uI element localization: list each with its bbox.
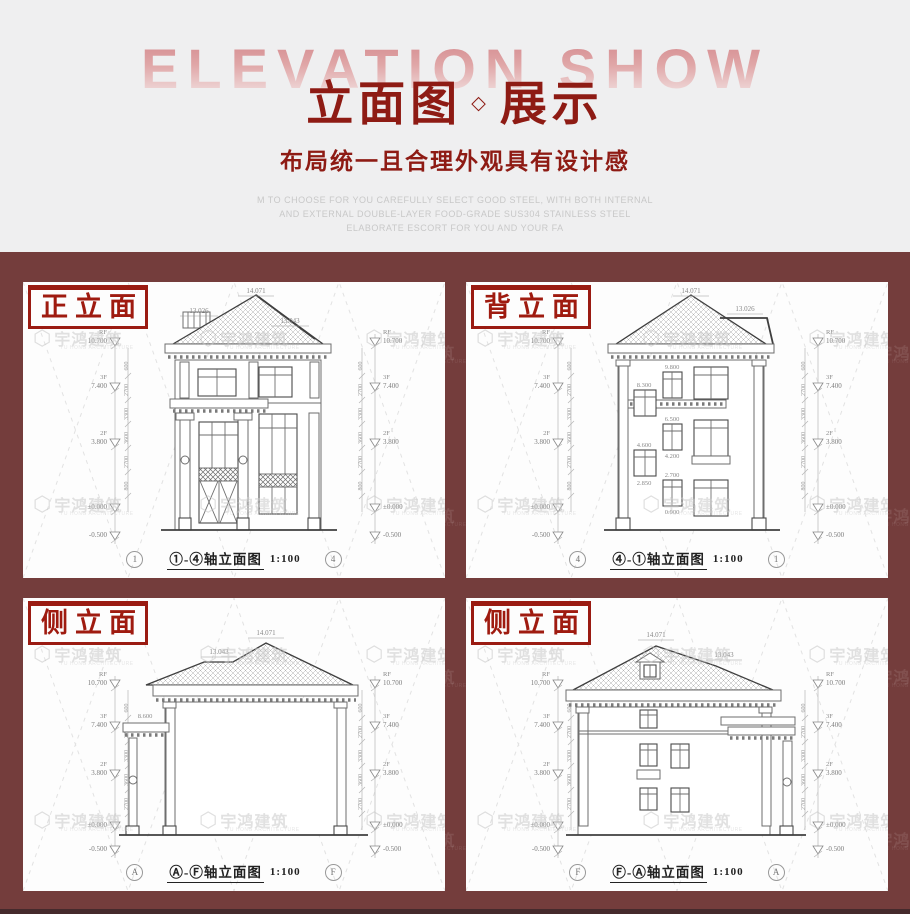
drawing-caption: A Ⓐ-Ⓕ轴立面图 1:100 F xyxy=(23,861,445,883)
page: ELEVATION SHOW 立面图◇展示 布局统一且合理外观具有设计感 M T… xyxy=(0,0,910,914)
page-subtitle: 布局统一且合理外观具有设计感 xyxy=(0,142,910,176)
description-line: AND EXTERNAL DOUBLE-LAYER FOOD-GRADE SUS… xyxy=(0,207,910,221)
caption-title: Ⓕ-Ⓐ轴立面图 xyxy=(610,861,707,883)
watermark-subtitle: YU HONG ARCHITECTURE xyxy=(226,827,300,833)
watermark-subtitle: YU HONG ARCHITECTURE xyxy=(392,511,445,517)
axis-marker-right: F xyxy=(325,864,342,881)
watermark-logo: ⬡宇鸿建筑YU HONG ARCHITECTURE xyxy=(642,326,731,350)
hexagon-logo-icon: ⬡ xyxy=(199,494,217,515)
hexagon-logo-icon: ⬡ xyxy=(365,810,383,831)
hexagon-logo-icon: ⬡ xyxy=(808,644,826,665)
title-part1: 立面图 xyxy=(306,77,462,130)
watermark-subtitle: YU HONG ARCHITECTURE xyxy=(669,661,743,667)
watermark-subtitle: YU HONG ARCHITECTURE xyxy=(226,661,300,667)
caption-title: ①-④轴立面图 xyxy=(167,548,264,570)
hexagon-logo-icon: ⬡ xyxy=(642,810,660,831)
panel-label-text: 侧立面 xyxy=(41,608,143,638)
hexagon-logo-icon: ⬡ xyxy=(33,328,51,349)
hexagon-logo-icon: ⬡ xyxy=(33,810,51,831)
watermark-logo: ⬡宇鸿建筑YU HONG ARCHITECTURE xyxy=(476,326,565,350)
panel-label-text: 背立面 xyxy=(484,292,586,322)
axis-marker-left: 4 xyxy=(569,551,586,568)
watermark-subtitle: YU HONG ARCHITECTURE xyxy=(835,827,888,833)
axis-marker-left: A xyxy=(126,864,143,881)
description-line: ELABORATE ESCORT FOR YOU AND YOUR FA xyxy=(0,221,910,235)
axis-marker-right: 1 xyxy=(768,551,785,568)
watermark-name: 宇鸿建筑 xyxy=(220,808,288,832)
hexagon-logo-icon: ⬡ xyxy=(642,328,660,349)
watermark-subtitle: YU HONG ARCHITECTURE xyxy=(226,511,300,517)
watermark-subtitle: YU HONG ARCHITECTURE xyxy=(835,511,888,517)
hexagon-logo-icon: ⬡ xyxy=(365,494,383,515)
hexagon-logo-icon: ⬡ xyxy=(476,810,494,831)
watermark-subtitle: YU HONG ARCHITECTURE xyxy=(392,345,445,351)
watermark-logo: ⬡宇鸿建筑YU HONG ARCHITECTURE xyxy=(808,326,888,350)
hexagon-logo-icon: ⬡ xyxy=(365,644,383,665)
hexagon-logo-icon: ⬡ xyxy=(33,494,51,515)
watermark-subtitle: YU HONG ARCHITECTURE xyxy=(503,661,577,667)
watermark-logo: ⬡宇鸿建筑YU HONG ARCHITECTURE xyxy=(199,326,288,350)
caption-scale: 1:100 xyxy=(713,553,744,565)
watermark-name: 宇鸿建筑 xyxy=(829,492,888,516)
watermark-logo: ⬡宇鸿建筑YU HONG ARCHITECTURE xyxy=(808,808,888,832)
panel-side-elevation-af: 6002700330036002700RF10.7003F7.4002F3.80… xyxy=(23,598,445,891)
watermark-logo: ⬡宇鸿建筑YU HONG ARCHITECTURE xyxy=(365,492,445,516)
hexagon-logo-icon: ⬡ xyxy=(476,328,494,349)
watermark-name: 宇鸿建筑 xyxy=(663,492,731,516)
watermark-name: 宇鸿建筑 xyxy=(220,326,288,350)
axis-marker-left: F xyxy=(569,864,586,881)
watermark-logo: ⬡宇鸿建筑YU HONG ARCHITECTURE xyxy=(808,642,888,666)
hexagon-logo-icon: ⬡ xyxy=(642,644,660,665)
drawing-caption: F Ⓕ-Ⓐ轴立面图 1:100 A xyxy=(466,861,888,883)
watermark-logo: ⬡宇鸿建筑YU HONG ARCHITECTURE xyxy=(642,492,731,516)
watermark-logo: ⬡宇鸿建筑YU HONG ARCHITECTURE xyxy=(642,642,731,666)
caption-scale: 1:100 xyxy=(270,553,301,565)
watermark-subtitle: YU HONG ARCHITECTURE xyxy=(669,827,743,833)
watermark-logo: ⬡宇鸿建筑YU HONG ARCHITECTURE xyxy=(199,808,288,832)
panel-label: 侧立面 xyxy=(28,601,148,645)
description-line: M TO CHOOSE FOR YOU CAREFULLY SELECT GOO… xyxy=(0,193,910,207)
panel-label: 侧立面 xyxy=(471,601,591,645)
watermark-logo: ⬡宇鸿建筑YU HONG ARCHITECTURE xyxy=(33,808,122,832)
watermark-subtitle: YU HONG ARCHITECTURE xyxy=(835,661,888,667)
panel-label: 正立面 xyxy=(28,285,148,329)
hexagon-logo-icon: ⬡ xyxy=(808,494,826,515)
watermark-name: 宇鸿建筑 xyxy=(497,326,565,350)
watermark-name: 宇鸿建筑 xyxy=(829,808,888,832)
watermark-logo: ⬡宇鸿建筑YU HONG ARCHITECTURE xyxy=(365,326,445,350)
panel-label-text: 侧立面 xyxy=(484,608,586,638)
caption-title: ④-①轴立面图 xyxy=(610,548,707,570)
watermark-subtitle: YU HONG ARCHITECTURE xyxy=(392,661,445,667)
watermark-logo: ⬡宇鸿建筑YU HONG ARCHITECTURE xyxy=(199,492,288,516)
watermark-subtitle: YU HONG ARCHITECTURE xyxy=(226,345,300,351)
watermark-subtitle: YU HONG ARCHITECTURE xyxy=(60,661,134,667)
hero-description: M TO CHOOSE FOR YOU CAREFULLY SELECT GOO… xyxy=(0,193,910,235)
watermark-name: 宇鸿建筑 xyxy=(220,642,288,666)
hexagon-logo-icon: ⬡ xyxy=(199,810,217,831)
panel-label-text: 正立面 xyxy=(41,292,143,322)
drawing-caption: 1 ①-④轴立面图 1:100 4 xyxy=(23,548,445,570)
watermark-name: 宇鸿建筑 xyxy=(497,808,565,832)
hero-section: ELEVATION SHOW 立面图◇展示 布局统一且合理外观具有设计感 M T… xyxy=(0,0,910,252)
watermark-logo: ⬡宇鸿建筑YU HONG ARCHITECTURE xyxy=(199,642,288,666)
watermark-subtitle: YU HONG ARCHITECTURE xyxy=(669,345,743,351)
watermark-logo: ⬡宇鸿建筑YU HONG ARCHITECTURE xyxy=(365,642,445,666)
caption-title: Ⓐ-Ⓕ轴立面图 xyxy=(167,861,264,883)
watermark-logo: ⬡宇鸿建筑YU HONG ARCHITECTURE xyxy=(33,326,122,350)
axis-marker-right: A xyxy=(768,864,785,881)
watermark-name: 宇鸿建筑 xyxy=(663,326,731,350)
watermark-name: 宇鸿建筑 xyxy=(54,642,122,666)
watermark-logo: ⬡宇鸿建筑YU HONG ARCHITECTURE xyxy=(476,492,565,516)
panel-front-elevation: 6002700330036002700800RF10.7003F7.4002F3… xyxy=(23,282,445,578)
watermark-logo: ⬡宇鸿建筑YU HONG ARCHITECTURE xyxy=(476,808,565,832)
watermark-logo: ⬡宇鸿建筑YU HONG ARCHITECTURE xyxy=(33,642,122,666)
watermark-name: 宇鸿建筑 xyxy=(54,492,122,516)
watermark-logo: ⬡宇鸿建筑YU HONG ARCHITECTURE xyxy=(642,808,731,832)
watermark-subtitle: YU HONG ARCHITECTURE xyxy=(503,827,577,833)
watermark-name: 宇鸿建筑 xyxy=(220,492,288,516)
watermark-subtitle: YU HONG ARCHITECTURE xyxy=(60,345,134,351)
watermark-name: 宇鸿建筑 xyxy=(54,326,122,350)
hexagon-logo-icon: ⬡ xyxy=(808,328,826,349)
axis-marker-left: 1 xyxy=(126,551,143,568)
watermark-logo: ⬡宇鸿建筑YU HONG ARCHITECTURE xyxy=(33,492,122,516)
page-title: 立面图◇展示 xyxy=(0,80,910,127)
hexagon-logo-icon: ⬡ xyxy=(199,644,217,665)
panel-label: 背立面 xyxy=(471,285,591,329)
hexagon-logo-icon: ⬡ xyxy=(476,644,494,665)
hexagon-logo-icon: ⬡ xyxy=(365,328,383,349)
watermark-logo: ⬡宇鸿建筑YU HONG ARCHITECTURE xyxy=(365,808,445,832)
hexagon-logo-icon: ⬡ xyxy=(642,494,660,515)
caption-scale: 1:100 xyxy=(713,866,744,878)
watermark-subtitle: YU HONG ARCHITECTURE xyxy=(392,827,445,833)
watermark-subtitle: YU HONG ARCHITECTURE xyxy=(669,511,743,517)
watermark-subtitle: YU HONG ARCHITECTURE xyxy=(835,345,888,351)
caption-scale: 1:100 xyxy=(270,866,301,878)
panel-side-elevation-fa: 6002700330036002700RF10.7003F7.4002F3.80… xyxy=(466,598,888,891)
watermark-name: 宇鸿建筑 xyxy=(829,642,888,666)
drawing-caption: 4 ④-①轴立面图 1:100 1 xyxy=(466,548,888,570)
hexagon-logo-icon: ⬡ xyxy=(199,328,217,349)
diamond-separator-icon: ◇ xyxy=(471,93,491,114)
elevation-grid-section: ⬡宇鸿建筑YU HONG ARCHITECTURE⬡宇鸿建筑YU HONG AR… xyxy=(0,252,910,914)
watermark-name: 宇鸿建筑 xyxy=(386,326,445,350)
watermark-name: 宇鸿建筑 xyxy=(829,326,888,350)
title-part2: 展示 xyxy=(500,77,604,130)
watermark-subtitle: YU HONG ARCHITECTURE xyxy=(60,511,134,517)
watermark-name: 宇鸿建筑 xyxy=(386,808,445,832)
hexagon-logo-icon: ⬡ xyxy=(476,494,494,515)
watermark-name: 宇鸿建筑 xyxy=(386,642,445,666)
axis-marker-right: 4 xyxy=(325,551,342,568)
hexagon-logo-icon: ⬡ xyxy=(33,644,51,665)
watermark-subtitle: YU HONG ARCHITECTURE xyxy=(503,511,577,517)
watermark-name: 宇鸿建筑 xyxy=(497,492,565,516)
watermark-logo: ⬡宇鸿建筑YU HONG ARCHITECTURE xyxy=(808,492,888,516)
panel-back-elevation: 6002700330036002700800RF10.7003F7.4002F3… xyxy=(466,282,888,578)
watermark-name: 宇鸿建筑 xyxy=(54,808,122,832)
watermark-logo: ⬡宇鸿建筑YU HONG ARCHITECTURE xyxy=(476,642,565,666)
watermark-name: 宇鸿建筑 xyxy=(386,492,445,516)
watermark-name: 宇鸿建筑 xyxy=(663,808,731,832)
watermark-name: 宇鸿建筑 xyxy=(497,642,565,666)
hexagon-logo-icon: ⬡ xyxy=(808,810,826,831)
watermark-subtitle: YU HONG ARCHITECTURE xyxy=(503,345,577,351)
watermark-name: 宇鸿建筑 xyxy=(663,642,731,666)
watermark-subtitle: YU HONG ARCHITECTURE xyxy=(60,827,134,833)
